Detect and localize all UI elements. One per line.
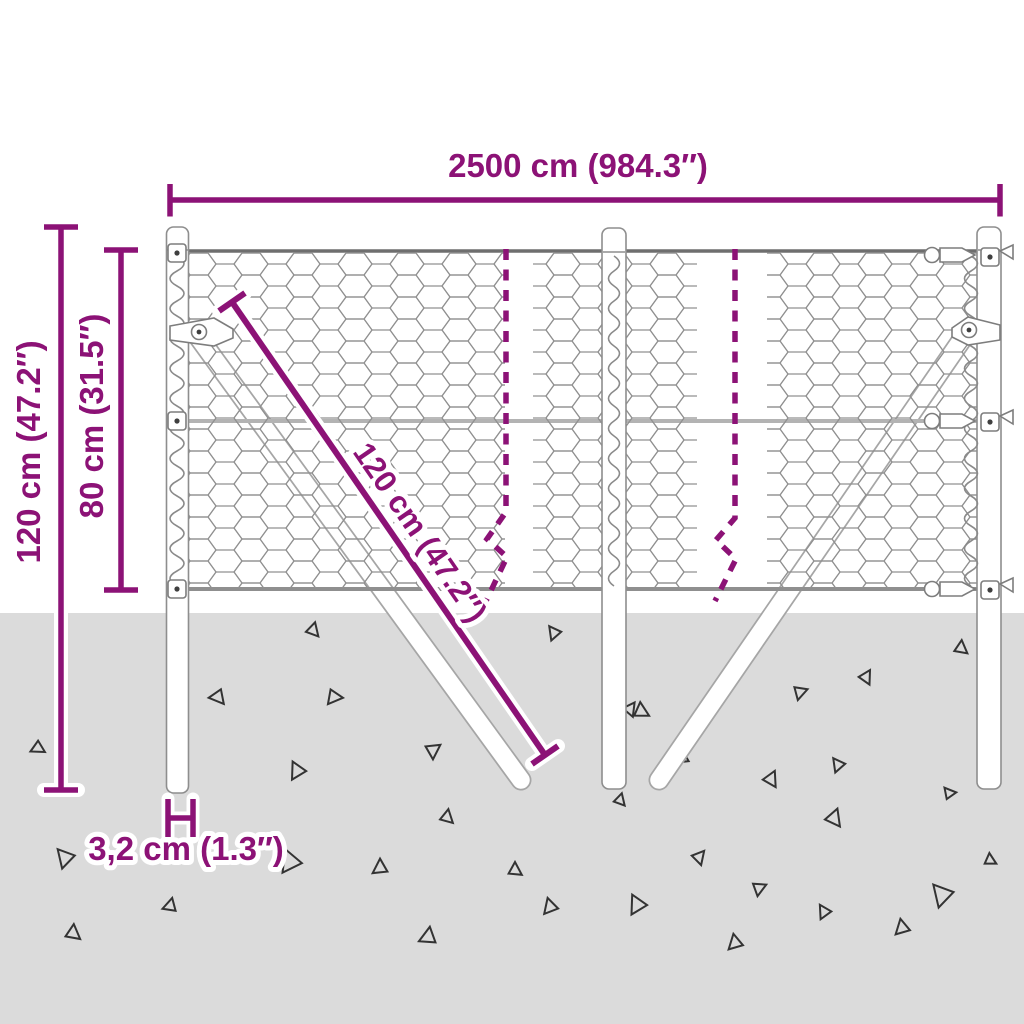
wire-clamp <box>168 244 186 262</box>
mesh-panels <box>180 252 978 588</box>
total-width-label: 2500 cm (984.3″) <box>448 147 708 184</box>
total-height-label: 120 cm (47.2″) <box>10 340 47 563</box>
fence-height-label: 80 cm (31.5″) <box>73 314 110 519</box>
diagram-canvas: 2500 cm (984.3″) 120 cm (47.2″) 80 cm (3… <box>0 0 1024 1024</box>
fence-dimension-diagram: 2500 cm (984.3″) 120 cm (47.2″) 80 cm (3… <box>0 0 1024 1024</box>
right-post <box>977 227 1001 789</box>
wire-clamp <box>168 580 186 598</box>
middle-post <box>602 228 626 789</box>
wire-clamp <box>168 412 186 430</box>
post-diameter-label: 3,2 cm (1.3″) <box>88 830 284 867</box>
